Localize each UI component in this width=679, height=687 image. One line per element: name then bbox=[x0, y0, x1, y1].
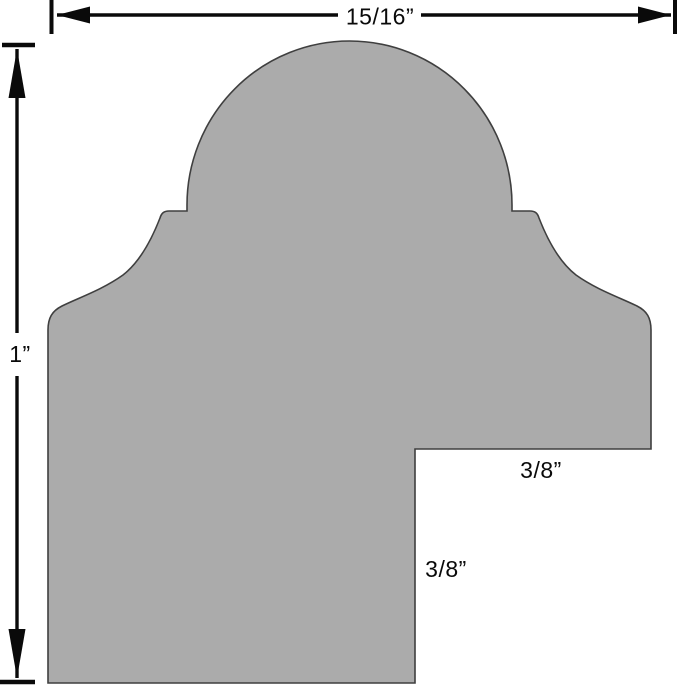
width-dimension-label: 15/16” bbox=[346, 4, 414, 30]
rabbet-width-label: 3/8” bbox=[520, 457, 562, 483]
rabbet-depth-label: 3/8” bbox=[425, 556, 467, 582]
molding-profile-diagram: 15/16” 1” 3/8” 3/8” bbox=[0, 0, 679, 687]
diagram-canvas: 15/16” 1” 3/8” 3/8” bbox=[0, 0, 679, 687]
height-dimension-label: 1” bbox=[9, 341, 30, 367]
